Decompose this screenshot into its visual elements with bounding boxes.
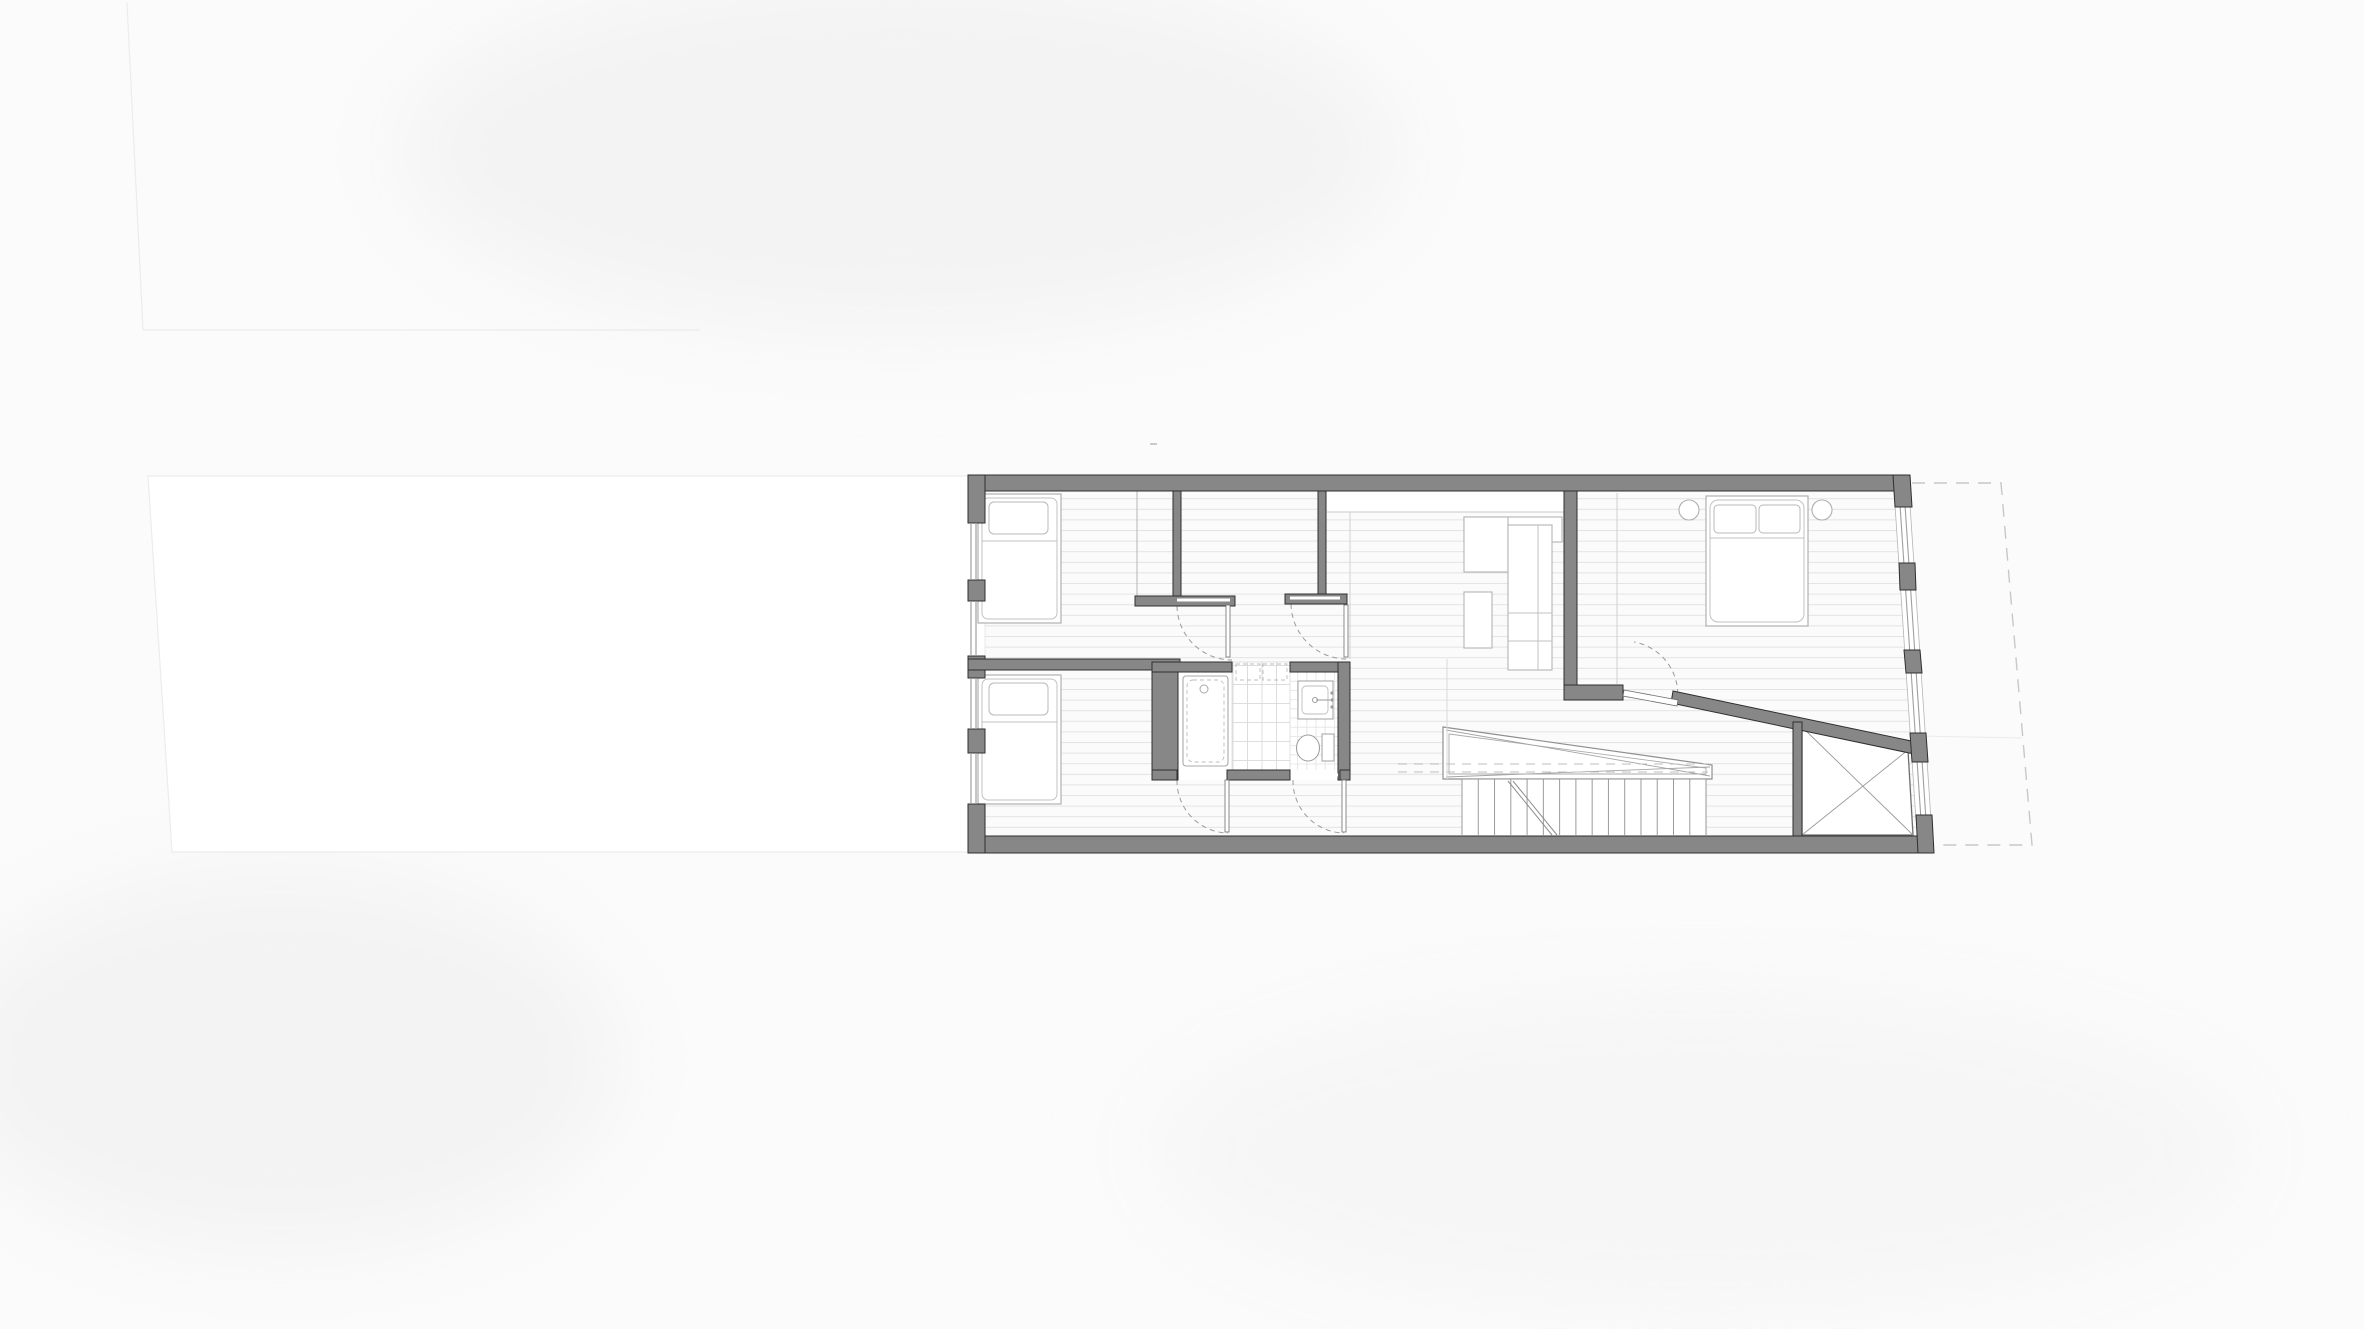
floor-plan-drawing <box>0 0 2364 1329</box>
plan-shapes-group <box>0 0 2250 1310</box>
faucet-dot-2 <box>1330 698 1333 701</box>
facade-pier-4 <box>1910 733 1928 762</box>
wall-bath-left <box>1152 662 1178 780</box>
site-edge-top-left-a <box>127 2 143 330</box>
door-leaf-wc <box>1342 780 1346 832</box>
wall-left-pier-4 <box>968 729 985 753</box>
door-leaf-shower <box>1225 780 1229 832</box>
wall-study-right <box>1318 491 1326 594</box>
toilet-tank <box>1322 734 1334 761</box>
floor-plan-page <box>0 0 2364 1329</box>
wall-bath-top-1 <box>1152 662 1232 672</box>
faucet-dot-3 <box>1330 705 1333 708</box>
door-leaf-hall <box>1344 605 1348 657</box>
toilet-bowl <box>1297 735 1320 761</box>
wall-shaft-left <box>1793 722 1802 836</box>
facade-pier-corner-top <box>1893 475 1912 507</box>
site-boundary-dashed <box>1912 483 2032 845</box>
stair-treads-area <box>1462 779 1706 835</box>
bathtub <box>1183 676 1228 766</box>
wall-top <box>968 475 1902 491</box>
faucet-dot-1 <box>1330 691 1333 694</box>
wall-bath-right <box>1338 662 1350 780</box>
bg-shade-bottom-right <box>1150 990 2250 1310</box>
wall-left-pier-5 <box>968 804 985 853</box>
bg-shade-bottom-left <box>0 870 620 1250</box>
wall-bedroom-divider <box>968 659 1180 670</box>
nightstand-2 <box>1812 500 1832 520</box>
bg-shade-top <box>400 0 1400 330</box>
facade-pier-3 <box>1904 650 1922 673</box>
wall-left-pier-2 <box>968 580 985 601</box>
wall-master-left <box>1564 491 1577 687</box>
living-top-band <box>1327 491 1564 512</box>
nightstand-1 <box>1679 500 1699 520</box>
wall-master-horizontal <box>1564 685 1623 700</box>
wall-left-pier-1 <box>968 475 985 523</box>
bed-1-pillow <box>989 502 1048 534</box>
wall-bottom <box>968 836 1924 853</box>
facade-pier-corner-bottom <box>1916 815 1934 853</box>
wall-bath-bottom-2 <box>1227 770 1290 780</box>
wall-bedroom1-right <box>1173 491 1181 603</box>
door-leaf-study <box>1226 605 1230 657</box>
wall-bath-bottom-1 <box>1152 770 1177 780</box>
wall-bath-top-2 <box>1290 662 1338 672</box>
site-left-parcel <box>148 476 985 852</box>
master-bed-pillow-2 <box>1759 505 1800 533</box>
facade-pier-2 <box>1899 563 1916 590</box>
site-line-right <box>1918 736 2022 738</box>
master-bed-pillow-1 <box>1714 505 1756 533</box>
sofa-left-section <box>1464 517 1508 572</box>
coffee-table <box>1464 592 1492 648</box>
wall-bath-bottom-3 <box>1340 770 1350 780</box>
sofa-chaise-section <box>1508 525 1552 670</box>
bed-2-pillow <box>989 683 1048 715</box>
